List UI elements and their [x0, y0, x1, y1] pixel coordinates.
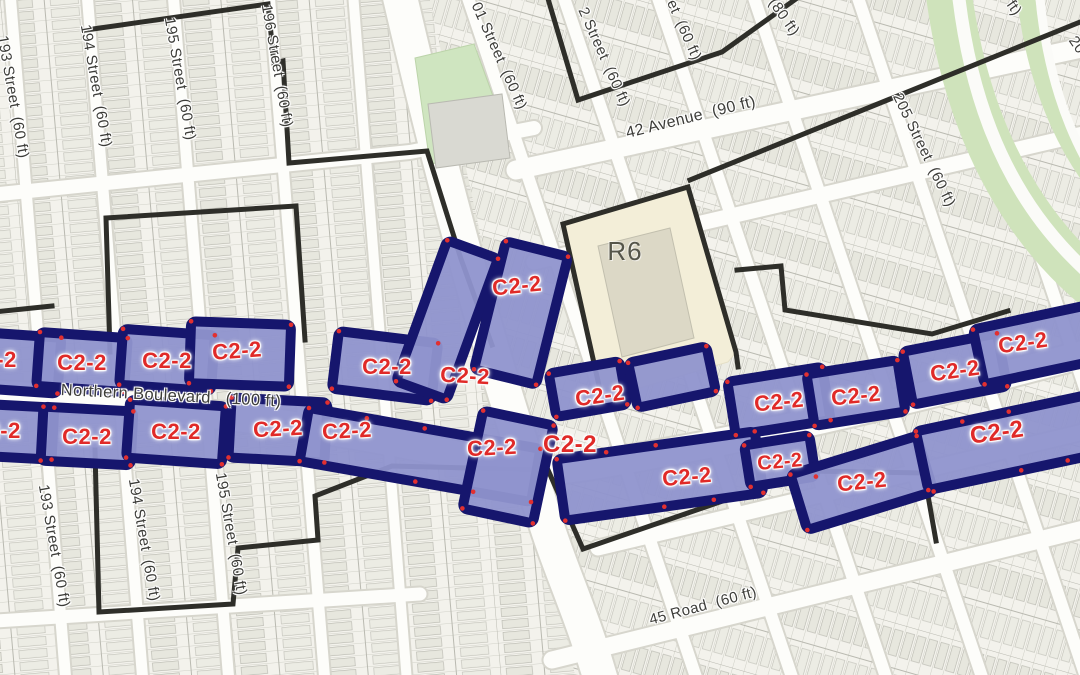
overlay-vertex-dot — [504, 239, 509, 244]
overlay-vertex-dot — [429, 399, 434, 404]
overlay-vertex-dot — [52, 405, 57, 410]
overlay-vertex-dot — [422, 426, 427, 431]
overlay-vertex-dot — [287, 384, 292, 389]
overlay-vertex-dot — [625, 402, 630, 407]
c2-overlay-polygon[interactable] — [36, 332, 128, 392]
overlay-vertex-dot — [413, 479, 418, 484]
overlay-vertex-dot — [229, 395, 234, 400]
overlay-vertex-dot — [289, 322, 294, 327]
overlay-vertex-dot — [903, 409, 908, 414]
c2-overlay-polygon[interactable] — [549, 361, 628, 417]
overlay-vertex-dot — [213, 333, 218, 338]
basemap-svg — [0, 0, 1080, 675]
c2-overlay-polygon[interactable] — [628, 346, 716, 408]
overlay-vertex-dot — [531, 521, 536, 526]
overlay-vertex-dot — [714, 389, 719, 394]
overlay-vertex-dot — [761, 490, 766, 495]
overlay-vertex-dot — [38, 330, 43, 335]
overlay-vertex-dot — [117, 382, 122, 387]
overlay-vertex-dot — [322, 460, 327, 465]
overlay-vertex-dot — [1019, 468, 1024, 473]
overlay-vertex-dot — [804, 372, 809, 377]
overlay-vertex-dot — [566, 254, 571, 259]
overlay-vertex-dot — [297, 459, 302, 464]
overlay-vertex-dot — [394, 379, 399, 384]
overlay-vertex-dot — [59, 335, 64, 340]
c2-overlay-polygon[interactable] — [806, 360, 905, 426]
overlay-vertex-dot — [812, 424, 817, 429]
overlay-vertex-dot — [617, 359, 622, 364]
overlay-vertex-dot — [911, 402, 916, 407]
overlay-vertex-dot — [445, 238, 450, 243]
overlay-vertex-dot — [554, 415, 559, 420]
overlay-vertex-dot — [788, 472, 793, 477]
overlay-vertex-dot — [125, 336, 130, 341]
zoning-map-canvas[interactable]: 193 Street (60 ft)194 Street (60 ft)195 … — [0, 0, 1080, 675]
overlay-vertex-dot — [1005, 384, 1010, 389]
overlay-vertex-dot — [995, 331, 1000, 336]
overlay-vertex-dot — [496, 256, 501, 261]
overlay-vertex-dot — [472, 367, 477, 372]
overlay-vertex-dot — [748, 485, 753, 490]
overlay-vertex-dot — [900, 349, 905, 354]
overlay-vertex-dot — [224, 404, 229, 409]
overlay-vertex-dot — [734, 433, 739, 438]
overlay-vertex-dot — [128, 397, 133, 402]
overlay-vertex-dot — [914, 434, 919, 439]
overlay-vertex-dot — [444, 397, 449, 402]
overlay-vertex-dot — [551, 423, 556, 428]
c2-overlay-polygon[interactable] — [462, 411, 553, 524]
overlay-vertex-dot — [538, 447, 543, 452]
overlay-vertex-dot — [226, 455, 231, 460]
overlay-vertex-dot — [124, 455, 129, 460]
overlay-vertex-dot — [481, 408, 486, 413]
overlay-vertex-dot — [554, 457, 559, 462]
overlay-vertex-dot — [814, 474, 819, 479]
overlay-vertex-dot — [330, 386, 335, 391]
overlay-vertex-dot — [971, 327, 976, 332]
overlay-vertex-dot — [337, 329, 342, 334]
overlay-vertex-dot — [752, 429, 757, 434]
overlay-vertex-dot — [563, 518, 568, 523]
c2-overlay-polygon[interactable] — [41, 407, 134, 466]
overlay-vertex-dot — [365, 416, 370, 421]
overlay-vertex-dot — [49, 457, 54, 462]
overlay-vertex-dot — [41, 404, 46, 409]
overlay-vertex-dot — [653, 443, 658, 448]
overlay-vertex-dot — [38, 458, 43, 463]
overlay-vertex-dot — [534, 382, 539, 387]
overlay-vertex-dot — [325, 400, 330, 405]
overlay-vertex-dot — [604, 450, 609, 455]
overlay-vertex-dot — [128, 463, 133, 468]
overlay-vertex-dot — [914, 429, 919, 434]
overlay-vertex-dot — [187, 381, 192, 386]
overlay-vertex-dot — [725, 380, 730, 385]
overlay-vertex-dot — [712, 497, 717, 502]
overlay-vertex-dot — [982, 382, 987, 387]
overlay-vertex-dot — [895, 358, 900, 363]
overlay-vertex-dot — [121, 327, 126, 332]
overlay-vertex-dot — [460, 506, 465, 511]
overlay-vertex-dot — [820, 365, 825, 370]
overlay-vertex-dot — [805, 528, 810, 533]
overlay-vertex-dot — [55, 391, 60, 396]
overlay-vertex-dot — [662, 504, 667, 509]
overlay-vertex-dot — [635, 406, 640, 411]
c2-overlay-polygon[interactable] — [189, 321, 291, 386]
overlay-vertex-dot — [742, 443, 747, 448]
overlay-vertex-dot — [34, 384, 39, 389]
overlay-vertex-dot — [189, 319, 194, 324]
overlay-vertex-dot — [471, 489, 476, 494]
overlay-vertex-dot — [546, 371, 551, 376]
overlay-vertex-dot — [1006, 409, 1011, 414]
overlay-vertex-dot — [209, 389, 214, 394]
overlay-vertex-dot — [1065, 458, 1070, 463]
overlay-vertex-dot — [122, 390, 127, 395]
overlay-vertex-dot — [960, 419, 965, 424]
overlay-vertex-dot — [926, 488, 931, 493]
overlay-vertex-dot — [529, 500, 534, 505]
overlay-vertex-dot — [828, 418, 833, 423]
overlay-vertex-dot — [626, 361, 631, 366]
overlay-vertex-dot — [931, 489, 936, 494]
overlay-vertex-dot — [307, 406, 312, 411]
c2-overlay-polygon[interactable] — [126, 400, 226, 465]
overlay-vertex-dot — [220, 462, 225, 467]
overlay-vertex-dot — [807, 433, 812, 438]
overlay-vertex-dot — [131, 409, 136, 414]
overlay-vertex-dot — [436, 341, 441, 346]
overlay-vertex-dot — [704, 344, 709, 349]
